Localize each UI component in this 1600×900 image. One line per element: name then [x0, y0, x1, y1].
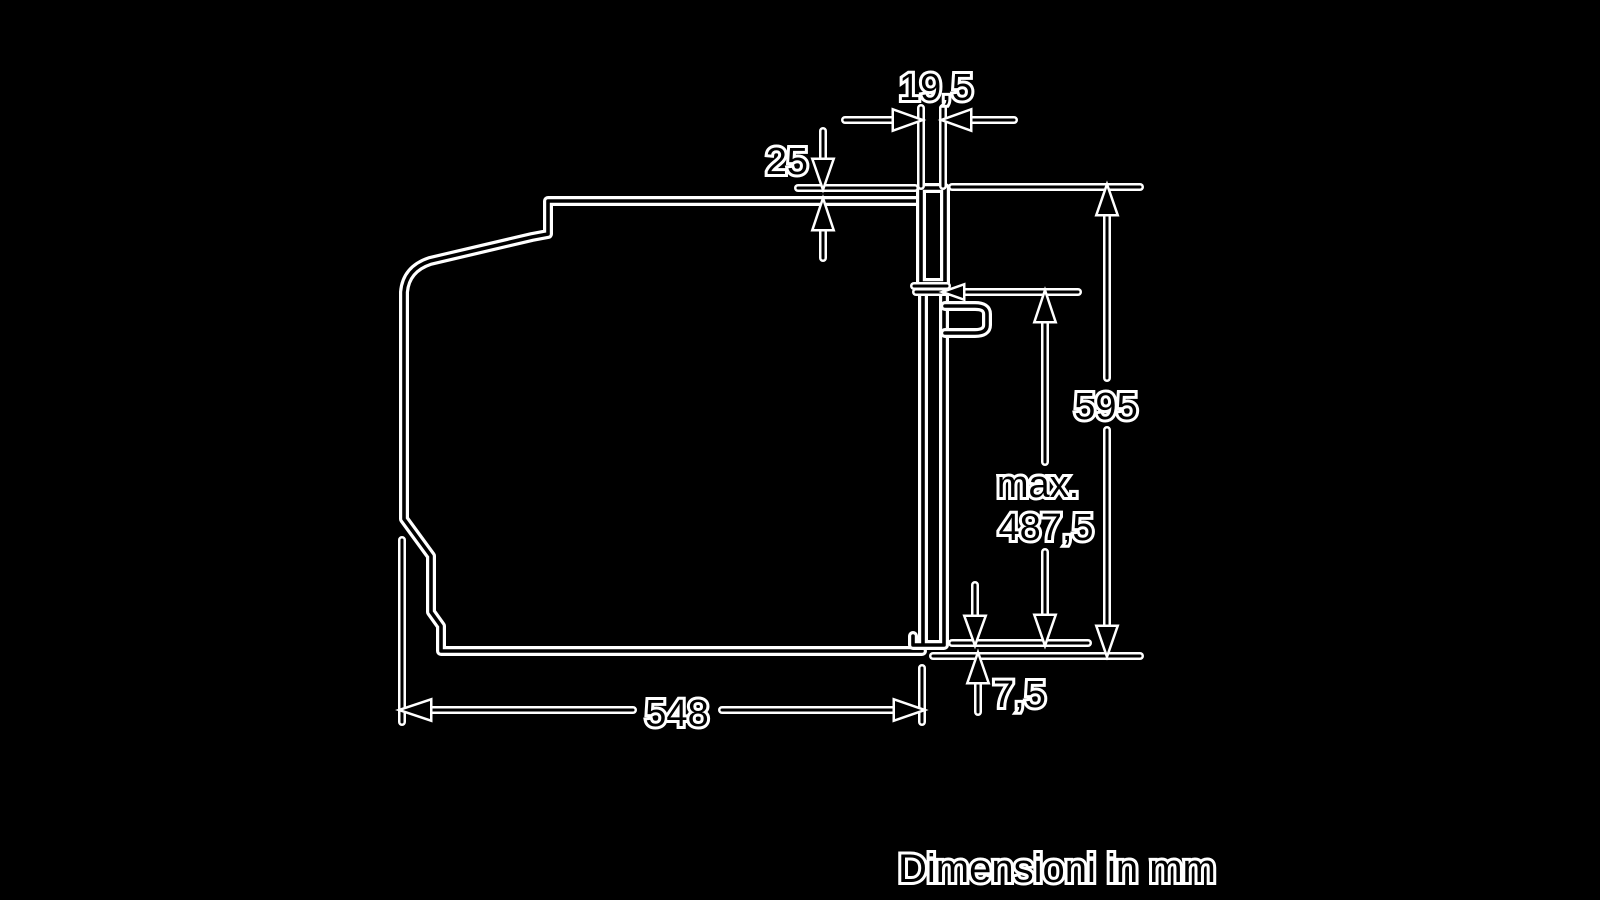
arrowhead-down	[966, 617, 984, 642]
screenshot-canvas: 19,5 25 595 max. 487,5	[0, 0, 1600, 900]
arrowhead-down	[814, 160, 832, 186]
dimension-diagram: 19,5 25 595 max. 487,5	[0, 0, 1600, 900]
dim-frame-depth: 19,5	[845, 67, 1014, 186]
oven-door	[913, 294, 944, 645]
arrowhead-left	[403, 701, 430, 719]
dim-bottom-gap: 7,5	[966, 585, 1046, 716]
label-max-prefix: max.	[997, 464, 1079, 506]
dim-top-gap: 25	[766, 131, 832, 258]
label-depth: 548	[645, 693, 708, 735]
label-max-value: 487,5	[998, 507, 1093, 549]
oven-profile	[404, 188, 987, 651]
dim-height: 595	[1074, 188, 1137, 653]
arrowhead-right	[895, 701, 921, 719]
label-top-gap: 25	[766, 141, 808, 183]
arrowhead-down	[1098, 627, 1116, 653]
label-height: 595	[1074, 386, 1137, 428]
oven-door-handle	[945, 306, 987, 333]
arrowhead-down	[1036, 616, 1054, 642]
oven-front-frame	[914, 188, 947, 286]
label-frame-depth: 19,5	[899, 67, 973, 109]
arrowhead-up	[1098, 188, 1116, 214]
oven-body-outline	[404, 201, 922, 651]
arrowhead-up	[1036, 294, 1054, 321]
caption-units: Dimensioni in mm	[898, 847, 1216, 891]
dim-depth: 548	[402, 540, 922, 735]
arrowhead-right	[894, 111, 919, 129]
arrowhead-up	[814, 202, 832, 229]
arrowhead-left	[945, 111, 970, 129]
label-bottom-gap: 7,5	[993, 674, 1046, 716]
